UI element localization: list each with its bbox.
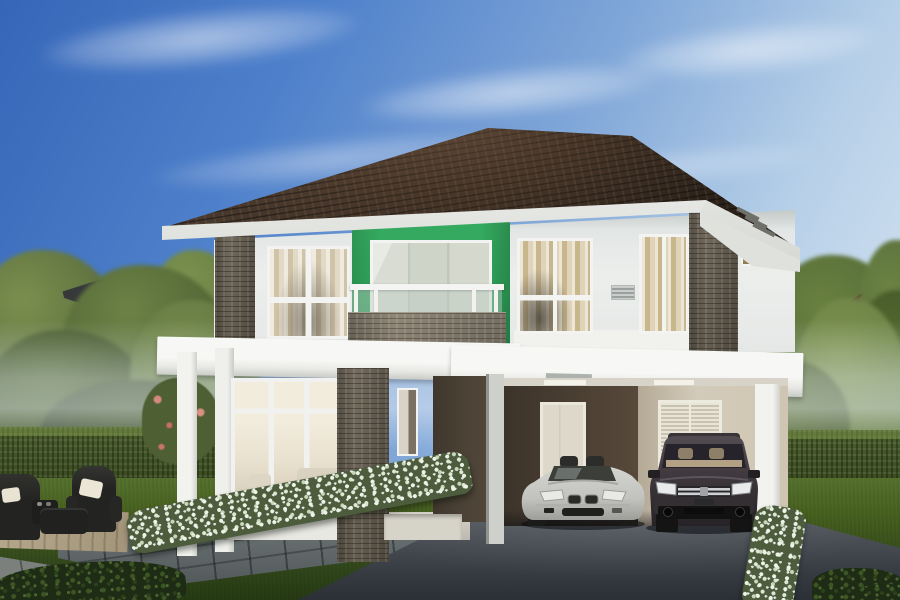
- headlight-right: [602, 490, 626, 501]
- entry-porch-shadow-wall: [433, 376, 486, 522]
- kidney-grille: [585, 495, 598, 504]
- bush-bottom-right: [858, 584, 900, 600]
- ottoman: [40, 508, 88, 534]
- mirror-left: [648, 470, 660, 478]
- ceiling-light: [654, 380, 694, 385]
- entry-step: [384, 514, 462, 540]
- fog-light: [736, 508, 745, 517]
- bedroom-window-left: [267, 246, 350, 339]
- headlight-right: [732, 482, 752, 495]
- headlight-left: [656, 482, 676, 495]
- dark-suv-car: [642, 430, 766, 534]
- bedroom-window-right-a: [517, 238, 593, 334]
- silver-roadster-car: [516, 444, 650, 530]
- rendering-canvas: [0, 0, 900, 600]
- bumper-intake: [562, 508, 604, 516]
- table-item: [46, 502, 51, 506]
- armchair-arm: [110, 496, 122, 522]
- seat: [709, 448, 724, 459]
- ceiling-light: [544, 380, 586, 385]
- honda-logo: [700, 487, 708, 496]
- seat: [678, 448, 693, 459]
- dashboard: [666, 460, 742, 467]
- ac-vent-grille: [611, 285, 635, 300]
- kidney-grille: [568, 495, 581, 504]
- stone-column-left: [215, 226, 255, 354]
- fog-light: [664, 508, 673, 517]
- license-plate: [694, 499, 714, 505]
- entry-narrow-window: [397, 388, 418, 456]
- headlight-left: [540, 490, 564, 501]
- table-item: [37, 502, 42, 506]
- mirror-right: [748, 470, 760, 478]
- carport-grey-pillar: [486, 374, 504, 544]
- bedroom-window-right-b: [639, 234, 689, 334]
- cushion: [1, 487, 21, 503]
